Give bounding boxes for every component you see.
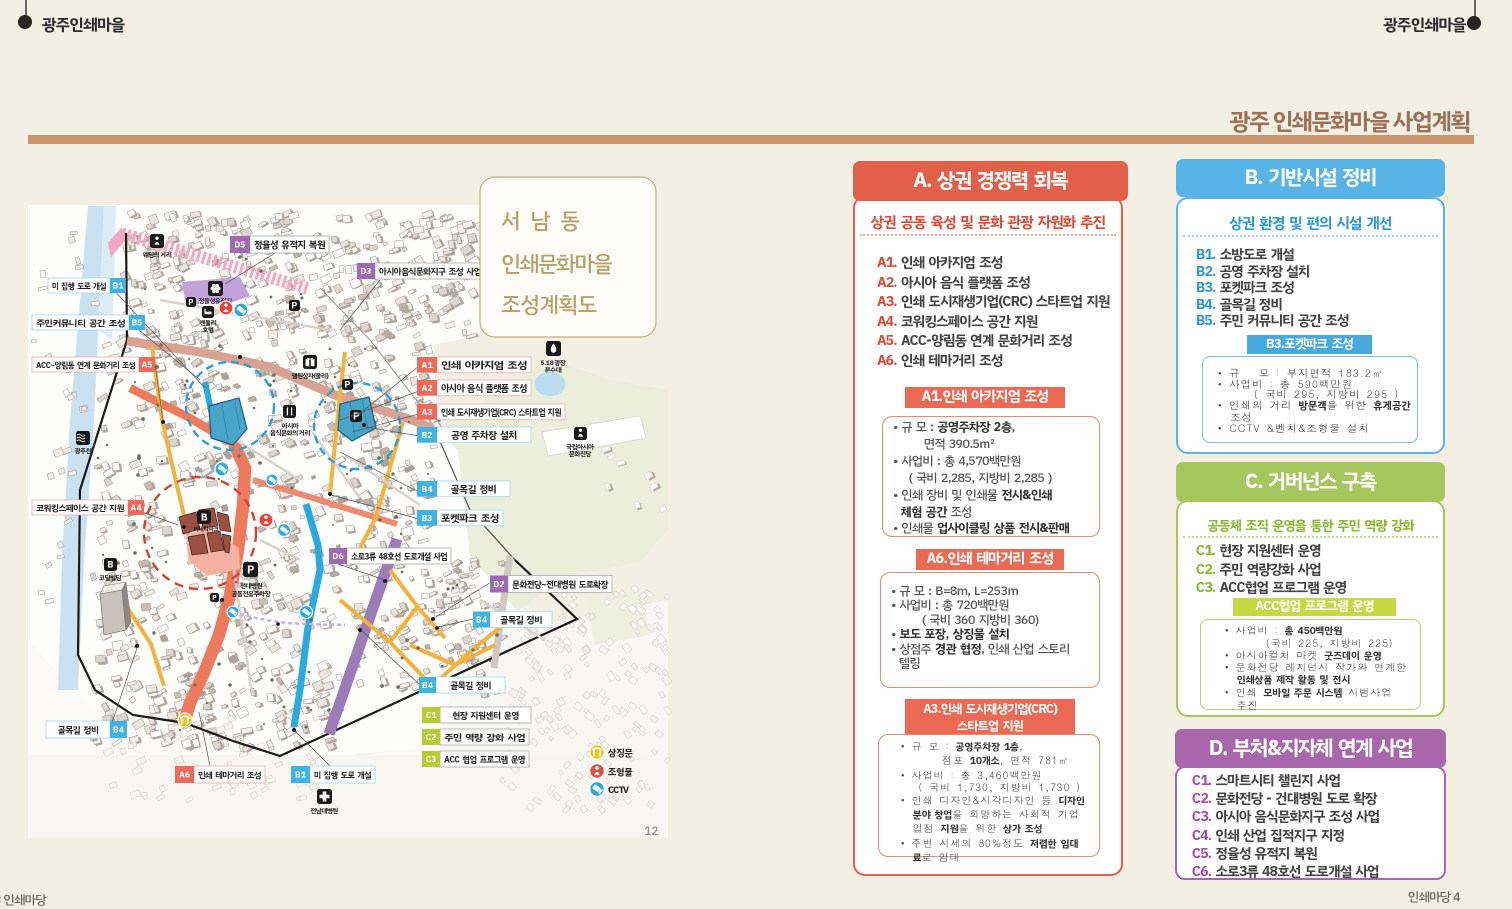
svg-text:조성계획도: 조성계획도 xyxy=(501,289,597,322)
svg-text:웨딩의 거리: 웨딩의 거리 xyxy=(142,250,172,260)
svg-text:코딜빌딩: 코딜빌딩 xyxy=(99,573,121,583)
svg-text:D6: D6 xyxy=(332,550,344,563)
svg-text:B5: B5 xyxy=(132,317,144,330)
svg-text:공영 주차장 설치: 공영 주차장 설치 xyxy=(451,428,517,443)
svg-text:코워킹스페이스 공간 지원: 코워킹스페이스 공간 지원 xyxy=(36,502,125,515)
svg-text:B4: B4 xyxy=(422,483,433,496)
svg-text:B4: B4 xyxy=(422,679,433,692)
svg-text:P: P xyxy=(247,561,254,578)
svg-text:A6: A6 xyxy=(179,769,191,782)
svg-text:골목길 정비: 골목길 정비 xyxy=(58,723,99,737)
svg-text:미 집행 도로 개설: 미 집행 도로 개설 xyxy=(314,769,372,782)
svg-text:호텔: 호텔 xyxy=(203,325,214,335)
svg-text:ACC 협업 프로그램 운영: ACC 협업 프로그램 운영 xyxy=(444,752,525,766)
svg-text:포켓파크 조성: 포켓파크 조성 xyxy=(441,511,499,526)
svg-text:P: P xyxy=(188,297,194,309)
svg-text:조형물: 조형물 xyxy=(608,765,633,779)
svg-text:정율성 유적지 복원: 정율성 유적지 복원 xyxy=(254,238,326,253)
svg-text:인쇄문화마을: 인쇄문화마을 xyxy=(501,248,612,281)
svg-text:A4: A4 xyxy=(131,502,142,515)
svg-text:인쇄 도시재생기업(CRC) 스타트업 지원: 인쇄 도시재생기업(CRC) 스타트업 지원 xyxy=(441,405,561,419)
svg-text:문화전당~전대병원 도로확장: 문화전당~전대병원 도로확장 xyxy=(512,577,609,591)
svg-text:D3: D3 xyxy=(360,265,371,278)
svg-text:C3: C3 xyxy=(426,753,437,766)
svg-text:골목길 정비: 골목길 정비 xyxy=(451,482,496,497)
svg-text:B: B xyxy=(107,558,113,572)
svg-text:D2: D2 xyxy=(493,578,504,591)
svg-text:B2: B2 xyxy=(422,429,433,442)
svg-text:서남동: 서남동 xyxy=(501,205,590,238)
svg-text:골목길 정비: 골목길 정비 xyxy=(450,678,491,692)
svg-text:현장 지원센터 운영: 현장 지원센터 운영 xyxy=(452,708,519,722)
svg-text:B4: B4 xyxy=(476,614,487,627)
svg-text:광주천: 광주천 xyxy=(75,446,92,456)
svg-text:인쇄 테마거리 조성: 인쇄 테마거리 조성 xyxy=(198,769,261,782)
svg-text:ACC~양림동 연계 문화거리 조성: ACC~양림동 연계 문화거리 조성 xyxy=(36,359,135,372)
svg-text:B1: B1 xyxy=(295,769,306,782)
svg-text:공동전용주차장: 공동전용주차장 xyxy=(232,589,271,599)
svg-text:주민 역량 강화 사업: 주민 역량 강화 사업 xyxy=(444,730,526,744)
svg-text:골목길 정비: 골목길 정비 xyxy=(500,613,542,627)
svg-text:P: P xyxy=(212,592,217,603)
svg-text:A5: A5 xyxy=(142,359,154,372)
svg-text:P: P xyxy=(345,378,351,392)
svg-text:주민커뮤니티 공간 조성: 주민커뮤니티 공간 조성 xyxy=(36,317,125,330)
svg-text:인쇄 아카지엄 조성: 인쇄 아카지엄 조성 xyxy=(441,358,527,373)
svg-text:비테라파크: 비테라파크 xyxy=(193,525,218,534)
svg-text:B4: B4 xyxy=(113,724,124,737)
svg-text:CCTV: CCTV xyxy=(608,783,630,797)
svg-text:상징문: 상징문 xyxy=(608,746,633,760)
svg-text:소로3류 48호선 도로개설 사업: 소로3류 48호선 도로개설 사업 xyxy=(351,549,447,563)
svg-text:전남대병원: 전남대병원 xyxy=(309,806,338,816)
svg-text:A1: A1 xyxy=(422,359,433,372)
svg-text:P: P xyxy=(353,410,360,425)
svg-text:P: P xyxy=(292,299,298,313)
svg-text:음식문화의 거리: 음식문화의 거리 xyxy=(270,428,310,438)
svg-text:B: B xyxy=(201,511,208,526)
svg-text:미 집행 도로 개설: 미 집행 도로 개설 xyxy=(52,280,107,293)
svg-text:C2: C2 xyxy=(426,731,437,744)
svg-text:앨원상자(몰리): 앨원상자(몰리) xyxy=(292,371,329,381)
svg-text:아시아 음식 플랫폼 조성: 아시아 음식 플랫폼 조성 xyxy=(441,381,527,396)
svg-text:C1: C1 xyxy=(426,709,437,722)
svg-text:D5: D5 xyxy=(234,239,246,252)
svg-text:A3: A3 xyxy=(422,406,433,419)
svg-text:A2: A2 xyxy=(422,382,433,395)
svg-text:B3: B3 xyxy=(422,512,433,525)
svg-text:12: 12 xyxy=(644,822,658,840)
svg-text:문화전당: 문화전당 xyxy=(569,449,591,459)
svg-text:B1: B1 xyxy=(113,280,124,293)
svg-text:아시아음식문화지구 조성 사업: 아시아음식문화지구 조성 사업 xyxy=(379,264,481,278)
